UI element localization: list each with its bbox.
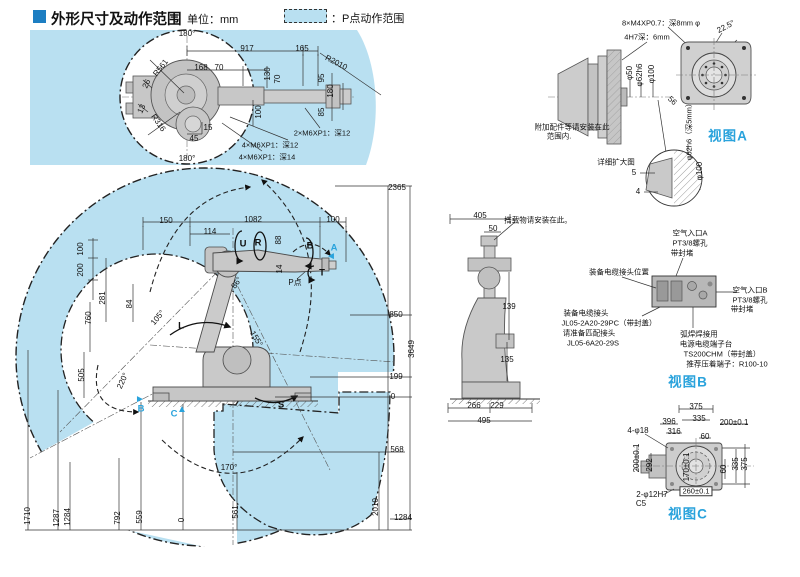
view-a-drawing	[548, 27, 756, 206]
page-title: 外形尺寸及动作范围	[51, 8, 182, 29]
technical-drawing	[0, 0, 800, 577]
p-point-range-label: ：P点动作范围	[331, 10, 404, 26]
robot-dimension-sheet: 外形尺寸及动作范围 单位：mm ：P点动作范围 180°917165R2010R…	[0, 0, 800, 577]
p-point-range-swatch	[284, 9, 327, 23]
unit-label: 单位：mm	[187, 11, 238, 27]
view-c-drawing	[637, 405, 754, 496]
view-b-drawing	[448, 214, 736, 421]
top-view-drawing	[30, 30, 381, 165]
title-square-icon	[33, 10, 46, 23]
main-view-drawing	[16, 168, 412, 547]
